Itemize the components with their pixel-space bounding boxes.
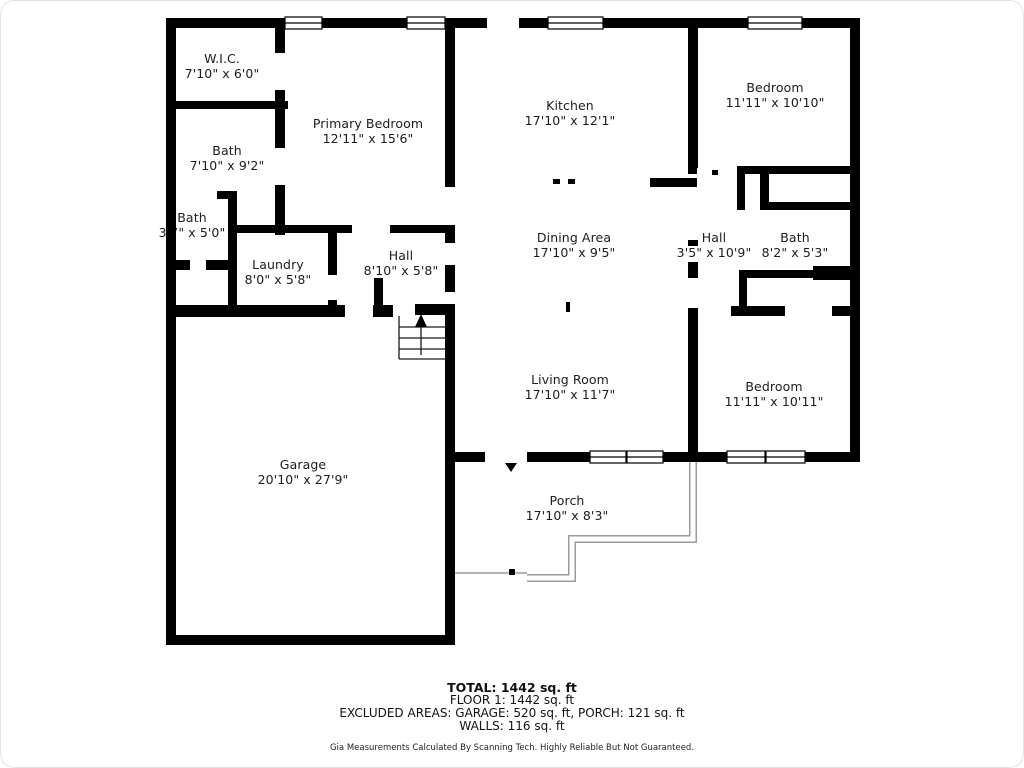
room-name: Bath	[762, 231, 829, 246]
room-dims: 17'10" x 11'7"	[525, 388, 616, 403]
room-dims: 17'10" x 8'3"	[526, 509, 609, 524]
room-name: Bedroom	[726, 81, 825, 96]
room-label-bedroom-top-right: Bedroom 11'11" x 10'10"	[726, 81, 825, 110]
room-label-garage: Garage 20'10" x 27'9"	[258, 458, 349, 487]
room-dims: 7'10" x 9'2"	[190, 159, 265, 174]
room-label-living-room: Living Room 17'10" x 11'7"	[525, 373, 616, 402]
disclaimer-text: Gia Measurements Calculated By Scanning …	[0, 742, 1024, 755]
room-label-laundry: Laundry 8'0" x 5'8"	[245, 258, 312, 287]
room-dims: 8'10" x 5'8"	[364, 264, 439, 279]
room-dims: 17'10" x 12'1"	[525, 114, 616, 129]
room-name: Primary Bedroom	[313, 117, 423, 132]
room-dims: 11'11" x 10'11"	[725, 395, 824, 410]
room-dims: 8'2" x 5'3"	[762, 246, 829, 261]
room-dims: 20'10" x 27'9"	[258, 473, 349, 488]
room-dims: 7'10" x 6'0"	[185, 67, 260, 82]
room-name: Kitchen	[525, 99, 616, 114]
room-name: Living Room	[525, 373, 616, 388]
room-labels: W.I.C. 7'10" x 6'0" Bath 7'10" x 9'2" Ba…	[0, 0, 1024, 768]
room-name: Dining Area	[533, 231, 616, 246]
room-name: Bath	[159, 211, 226, 226]
room-name: Hall	[364, 249, 439, 264]
room-label-bedroom-bottom-right: Bedroom 11'11" x 10'11"	[725, 380, 824, 409]
room-label-dining-area: Dining Area 17'10" x 9'5"	[533, 231, 616, 260]
room-dims: 8'0" x 5'8"	[245, 273, 312, 288]
room-label-bath-small: Bath 3'7" x 5'0"	[159, 211, 226, 240]
room-dims: 3'5" x 10'9"	[677, 246, 752, 261]
summary-footer: TOTAL: 1442 sq. ft FLOOR 1: 1442 sq. ft …	[0, 681, 1024, 755]
room-label-kitchen: Kitchen 17'10" x 12'1"	[525, 99, 616, 128]
room-name: Garage	[258, 458, 349, 473]
room-name: Porch	[526, 494, 609, 509]
room-label-bath-primary: Bath 7'10" x 9'2"	[190, 144, 265, 173]
room-name: Laundry	[245, 258, 312, 273]
room-label-wic: W.I.C. 7'10" x 6'0"	[185, 52, 260, 81]
room-label-porch: Porch 17'10" x 8'3"	[526, 494, 609, 523]
room-name: Bath	[190, 144, 265, 159]
room-dims: 11'11" x 10'10"	[726, 96, 825, 111]
walls-area-text: WALLS: 116 sq. ft	[0, 720, 1024, 733]
room-dims: 12'11" x 15'6"	[313, 132, 423, 147]
room-label-hall-right: Hall 3'5" x 10'9"	[677, 231, 752, 260]
room-name: Bedroom	[725, 380, 824, 395]
room-dims: 17'10" x 9'5"	[533, 246, 616, 261]
room-dims: 3'7" x 5'0"	[159, 226, 226, 241]
room-label-primary-bedroom: Primary Bedroom 12'11" x 15'6"	[313, 117, 423, 146]
room-name: Hall	[677, 231, 752, 246]
room-label-bath-hall: Bath 8'2" x 5'3"	[762, 231, 829, 260]
room-label-hall-center: Hall 8'10" x 5'8"	[364, 249, 439, 278]
room-name: W.I.C.	[185, 52, 260, 67]
floorplan-page: W.I.C. 7'10" x 6'0" Bath 7'10" x 9'2" Ba…	[0, 0, 1024, 768]
